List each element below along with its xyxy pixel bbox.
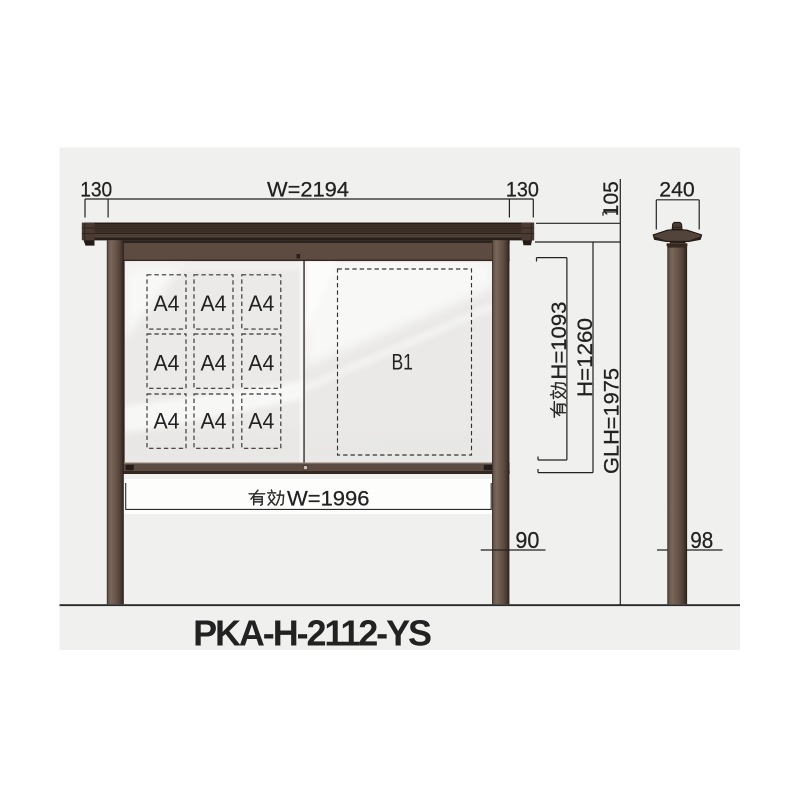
svg-text:98: 98	[690, 527, 713, 553]
svg-text:H=1093: H=1093	[548, 302, 571, 380]
svg-text:90: 90	[515, 527, 539, 553]
svg-text:105: 105	[600, 181, 623, 216]
svg-text:PKA-H-2112-YS: PKA-H-2112-YS	[193, 613, 431, 654]
svg-text:130: 130	[506, 179, 539, 202]
svg-text:A4: A4	[248, 350, 274, 375]
svg-text:A4: A4	[154, 409, 180, 434]
svg-text:W=2194: W=2194	[267, 179, 349, 202]
svg-text:H=1260: H=1260	[574, 318, 597, 397]
svg-text:A4: A4	[248, 409, 274, 434]
svg-text:A4: A4	[201, 409, 227, 434]
svg-text:B1: B1	[391, 350, 413, 375]
svg-text:A4: A4	[248, 291, 274, 316]
svg-text:A4: A4	[201, 350, 227, 375]
svg-text:A4: A4	[154, 291, 180, 316]
svg-text:W=1996: W=1996	[287, 487, 370, 510]
svg-text:240: 240	[659, 179, 695, 202]
svg-text:130: 130	[80, 179, 112, 202]
svg-text:A4: A4	[154, 350, 180, 375]
svg-text:GLH=1975: GLH=1975	[600, 368, 623, 474]
svg-text:A4: A4	[201, 291, 227, 316]
